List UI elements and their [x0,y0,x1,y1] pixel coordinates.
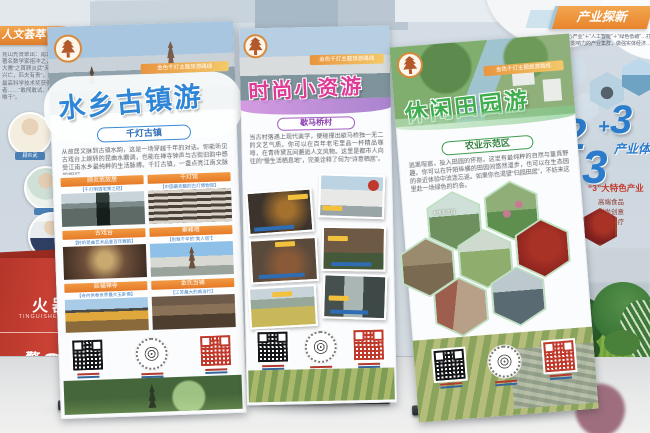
qr-group [200,335,231,371]
banner-subtitle: 千灯古镇 [97,124,191,142]
attraction-card: 古戏台 【聆听昆曲艺术品鉴百年雅韵】 [62,228,147,280]
card-photo [65,297,149,333]
attraction-card: 延福禅寺 【寺内供奉世界最大玉卧佛】 [64,281,149,333]
photo-caption-strip [254,225,294,232]
qr-code-row [257,330,384,370]
attraction-card-grid: 顾炎武故居 【千灯明清宅第之冠】 千灯馆 【中国最完整的古灯博物馆】 古戏台 【… [60,172,235,333]
card-photo [63,244,147,280]
photo-label-chip [329,295,349,301]
black-qr-code [433,349,465,381]
card-photo [148,188,232,224]
qr-group [543,340,576,377]
photo-caption-strip [331,262,371,267]
route-ribbon: 金色千灯主题旅游路线 [310,54,384,66]
attraction-card: 金氏当铺 【江苏最大的典当行】 [151,278,236,330]
plus-sign: + [598,116,610,139]
red-stamp-icon [368,180,379,191]
collage-photo-cafe [245,187,314,236]
qr-group [353,330,384,366]
red-qr-code [543,340,575,372]
black-qr-code [257,332,288,363]
qr-group [304,331,337,369]
qr-group [72,340,103,376]
qr-caption-bar [550,373,572,377]
collage-photo-wooden-house [321,226,386,272]
card-photo [61,191,145,227]
collage-photo-house [318,173,385,219]
right-wall-header: 产业探新 [549,6,650,29]
qr-group [135,337,168,375]
black-qr-code [72,340,103,371]
circle-logo-qr-code [304,331,337,364]
exhibition-hall-photo: 人文荟萃 昆山先贤辈出：南北朝著名数学家祖冲之，“三大儒”之首顾炎武“天下兴亡，… [0,0,650,433]
photo-label-chip [322,205,342,211]
banner-intro-text: 逃离喧嚣，投入田园的怀抱，这里有最纯粹的自然与童真野趣。你可以在阡陌纵横的田园间… [409,150,571,192]
photo-label-chip [272,291,292,297]
red-qr-code [353,330,384,361]
ceiling-panel [90,0,265,26]
qr-caption-bar [205,368,227,371]
pagoda-silhouette [188,246,196,268]
circle-logo-qr-code [135,337,168,370]
qr-group [433,349,466,386]
qr-caption-bar [77,373,99,376]
feature-industries-title: “3”大特色产业 [588,182,650,194]
banner-subtitle: 歇马桥村 [277,116,355,131]
banner-countryside-tour: 金色千灯主题旅游路线 休闲田园游 农业示范区 逃离喧嚣，投入田园的怀抱，这里有最… [390,34,599,423]
card-photo [150,241,234,277]
banner-intro-text: 从故居文脉到古镇水韵，这是一场穿越千年的对话。你能听见古戏台上婉转的昆曲水磨调，… [61,143,228,175]
feature-item: 高端食品 [598,196,648,206]
purple-wave-band [241,97,391,115]
hexagon-label: 大唐生态园 [432,209,455,217]
qr-code-row [72,335,231,377]
attraction-card: 千灯馆 【中国最完整的古灯博物馆】 [147,172,232,224]
photo-caption-strip [330,309,368,314]
banner-water-town-tour: 金色千灯主题旅游路线 水乡古镇游 千灯古镇 从故居文脉到古镇水韵，这是一场穿越千… [47,21,247,419]
plant-moss [604,330,640,356]
collage-photo-field [248,284,318,330]
portrait-label: 顾炎武 [15,152,45,160]
photo-label-chip [288,194,308,200]
qr-caption-bar [440,382,462,386]
banner-fashion-tour: 金色千灯主题旅游路线 时尚小资游 歇马桥村 当古村落遇上现代美学，便碰撞出歇马桥… [239,25,397,405]
photo-label-chip [328,236,348,241]
collage-photo-pottery [249,236,319,285]
banner-intro-text: 当古村落遇上现代美学，便碰撞出歇马桥独一无二的文艺气质。你可以在百年老宅里品一杯… [249,132,384,175]
qr-caption-bar [358,363,380,365]
qr-group [257,332,288,368]
card-photo [152,294,236,330]
red-qr-code [200,335,231,366]
qr-group [487,344,522,383]
collage-photo-alley [322,273,387,320]
qr-caption-bar [262,365,284,367]
qr-caption-bar [141,373,163,376]
photo-label-chip [275,241,295,247]
building-shape [543,78,563,101]
photo-caption-strip [259,273,305,280]
industry-system-label: 产业体系 [614,140,650,157]
attraction-card: 顾炎武故居 【千灯明清宅第之冠】 [60,175,145,227]
big-number-3: 3 [610,98,632,143]
aerial-farmland-photo [248,367,395,402]
circle-logo-qr-code [487,344,521,378]
attraction-card: 秦峰塔 【别致千年的“美人塔”】 [149,225,234,277]
